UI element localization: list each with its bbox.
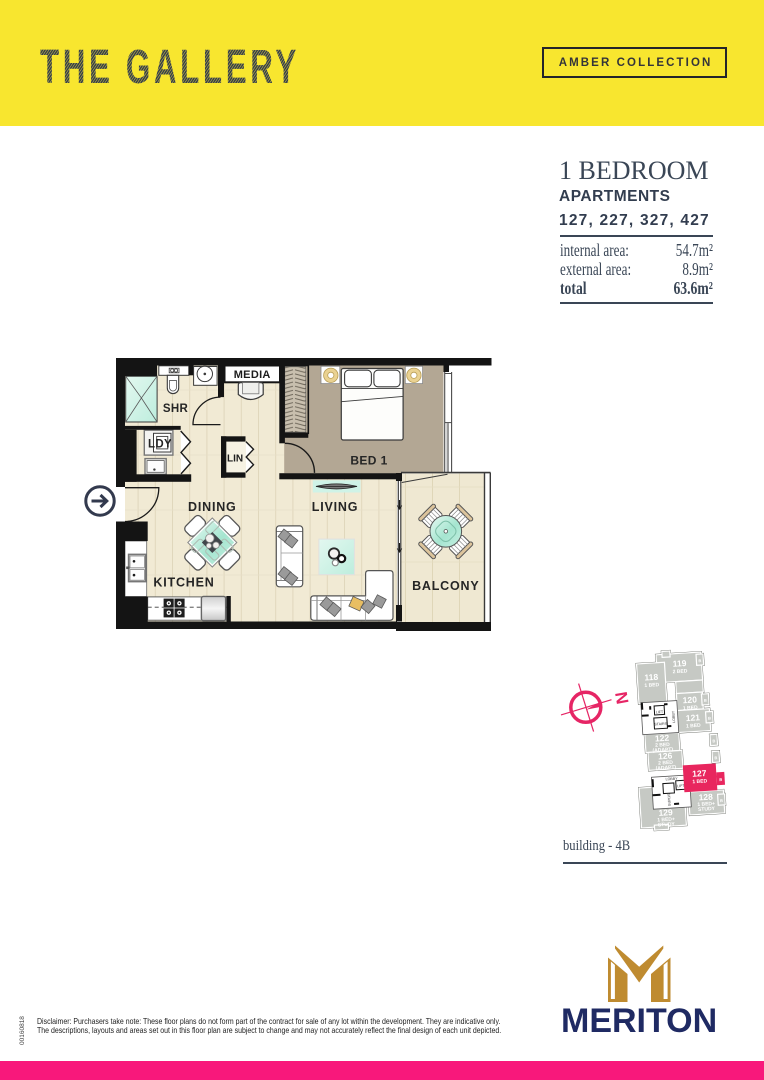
svg-text:1 BED: 1 BED	[683, 705, 698, 712]
svg-text:MEDIA: MEDIA	[234, 369, 271, 381]
svg-text:STUDY: STUDY	[658, 821, 676, 828]
svg-text:DINING: DINING	[188, 500, 237, 514]
svg-text:LIFT: LIFT	[656, 710, 664, 714]
svg-text:STAIRS: STAIRS	[654, 722, 668, 727]
svg-text:LIVING: LIVING	[312, 500, 358, 514]
svg-text:B: B	[708, 716, 711, 721]
svg-text:KITCHEN: KITCHEN	[153, 576, 214, 590]
svg-text:LDY: LDY	[148, 439, 172, 451]
svg-text:1 BED: 1 BED	[692, 778, 707, 785]
svg-text:B: B	[712, 738, 715, 743]
svg-text:SHR: SHR	[163, 403, 189, 415]
svg-text:B: B	[714, 755, 717, 760]
svg-text:2 BED: 2 BED	[673, 668, 688, 675]
svg-text:(ADAPT): (ADAPT)	[655, 765, 676, 772]
svg-text:127: 127	[692, 768, 707, 779]
svg-text:LOBBY: LOBBY	[665, 777, 678, 782]
svg-text:STUDY: STUDY	[698, 806, 716, 813]
svg-text:THE GALLERY: THE GALLERY	[40, 44, 300, 88]
svg-text:B: B	[704, 698, 707, 703]
svg-text:LOBBY: LOBBY	[671, 710, 676, 723]
svg-text:STAIRS: STAIRS	[666, 793, 671, 807]
svg-text:BED 1: BED 1	[350, 454, 387, 468]
svg-text:118: 118	[644, 672, 659, 683]
svg-text:121: 121	[685, 712, 700, 723]
svg-text:LIN: LIN	[227, 454, 243, 465]
svg-text:1 BED: 1 BED	[644, 682, 659, 689]
svg-text:BALCONY: BALCONY	[412, 579, 479, 593]
svg-text:1 BED: 1 BED	[686, 723, 701, 730]
svg-text:B: B	[720, 798, 723, 803]
svg-text:B: B	[698, 658, 701, 663]
svg-text:B: B	[719, 777, 722, 782]
svg-text:120: 120	[682, 694, 697, 705]
svg-text:119: 119	[672, 658, 687, 669]
svg-text:N: N	[611, 690, 632, 705]
